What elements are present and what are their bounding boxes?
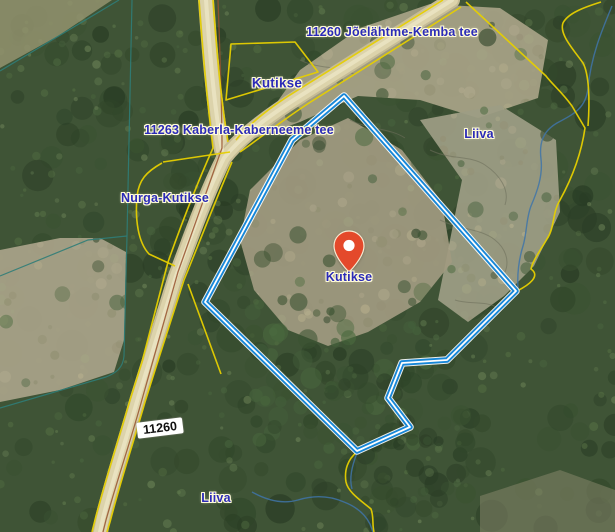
- pin-hole: [343, 240, 354, 251]
- aerial-imagery-layer: [0, 0, 615, 532]
- pin-icon: [331, 229, 367, 274]
- location-marker-pin[interactable]: [331, 229, 367, 274]
- map-canvas[interactable]: 11260 Jõelähtme-Kemba teeKutikse11263 Ka…: [0, 0, 615, 532]
